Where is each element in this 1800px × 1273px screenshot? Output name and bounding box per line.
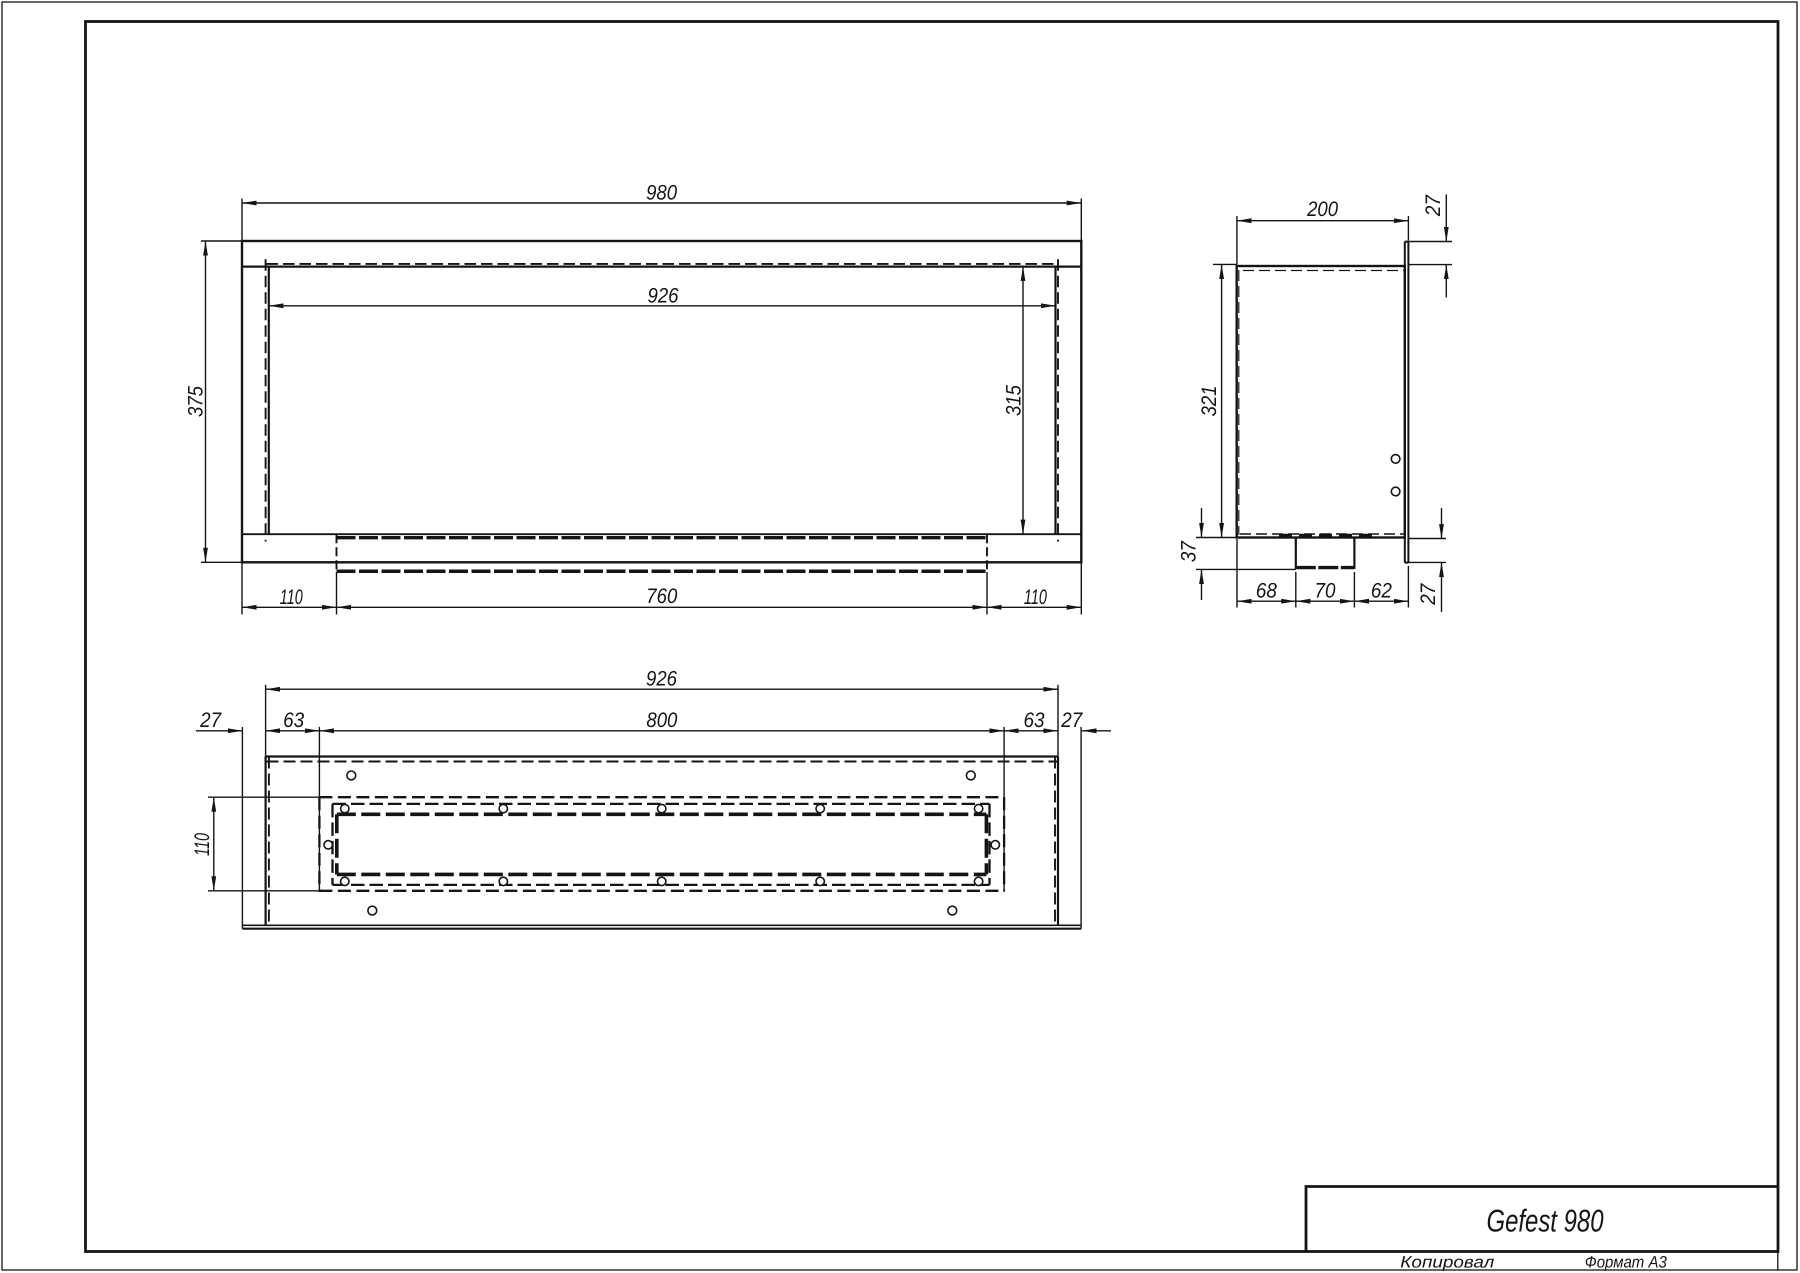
- svg-text:321: 321: [1198, 386, 1221, 417]
- svg-text:315: 315: [1003, 385, 1026, 416]
- svg-text:926: 926: [646, 668, 677, 691]
- svg-text:27: 27: [1417, 583, 1440, 606]
- svg-text:200: 200: [1306, 198, 1338, 221]
- svg-text:Gefest 980: Gefest 980: [1487, 1203, 1604, 1239]
- svg-text:63: 63: [283, 709, 304, 732]
- svg-text:70: 70: [1315, 580, 1336, 603]
- svg-text:110: 110: [280, 586, 303, 609]
- svg-text:27: 27: [1060, 709, 1083, 732]
- svg-text:760: 760: [646, 585, 677, 608]
- svg-text:37: 37: [1178, 540, 1201, 562]
- svg-text:63: 63: [1024, 709, 1045, 732]
- svg-text:980: 980: [646, 182, 677, 205]
- svg-text:926: 926: [648, 285, 679, 308]
- svg-text:27: 27: [199, 709, 222, 732]
- svg-text:62: 62: [1371, 580, 1392, 603]
- svg-text:375: 375: [185, 386, 208, 417]
- svg-text:68: 68: [1256, 580, 1277, 603]
- svg-text:Формат А3: Формат А3: [1585, 1254, 1668, 1272]
- svg-text:27: 27: [1422, 194, 1445, 217]
- svg-text:110: 110: [1024, 586, 1047, 609]
- svg-text:800: 800: [646, 709, 677, 732]
- svg-text:110: 110: [191, 833, 214, 856]
- svg-text:Копировал: Копировал: [1400, 1254, 1494, 1272]
